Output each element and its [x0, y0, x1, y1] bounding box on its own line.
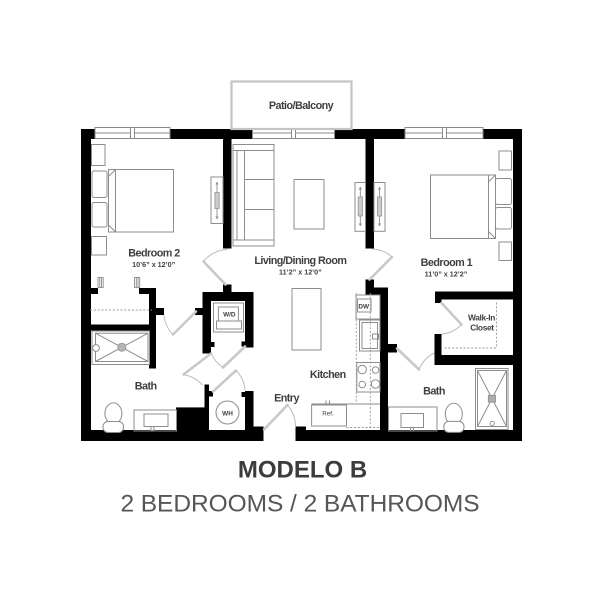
svg-text:Entry: Entry	[274, 392, 299, 404]
svg-text:Closet: Closet	[470, 323, 494, 333]
svg-text:Walk-In: Walk-In	[468, 313, 495, 323]
svg-text:11’0” x 12’2”: 11’0” x 12’2”	[425, 269, 468, 278]
svg-text:Bath: Bath	[423, 386, 445, 398]
svg-text:Patio/Balcony: Patio/Balcony	[269, 100, 334, 112]
svg-text:11’2” x 12’0”: 11’2” x 12’0”	[279, 268, 322, 277]
svg-text:DW: DW	[358, 304, 370, 311]
svg-text:Bedroom 2: Bedroom 2	[128, 248, 180, 260]
svg-text:MODELO B: MODELO B	[238, 457, 367, 484]
svg-text:Living/Dining Room: Living/Dining Room	[254, 255, 346, 267]
svg-text:2 BEDROOMS / 2 BATHROOMS: 2 BEDROOMS / 2 BATHROOMS	[120, 491, 479, 518]
svg-text:Ref.: Ref.	[322, 410, 334, 417]
svg-text:Bedroom 1: Bedroom 1	[421, 257, 473, 269]
svg-text:10’6” x 12’0”: 10’6” x 12’0”	[132, 260, 176, 269]
svg-text:Kitchen: Kitchen	[310, 369, 346, 381]
svg-text:W/D: W/D	[223, 312, 236, 319]
svg-text:WH: WH	[222, 411, 233, 418]
svg-text:Bath: Bath	[135, 381, 157, 393]
